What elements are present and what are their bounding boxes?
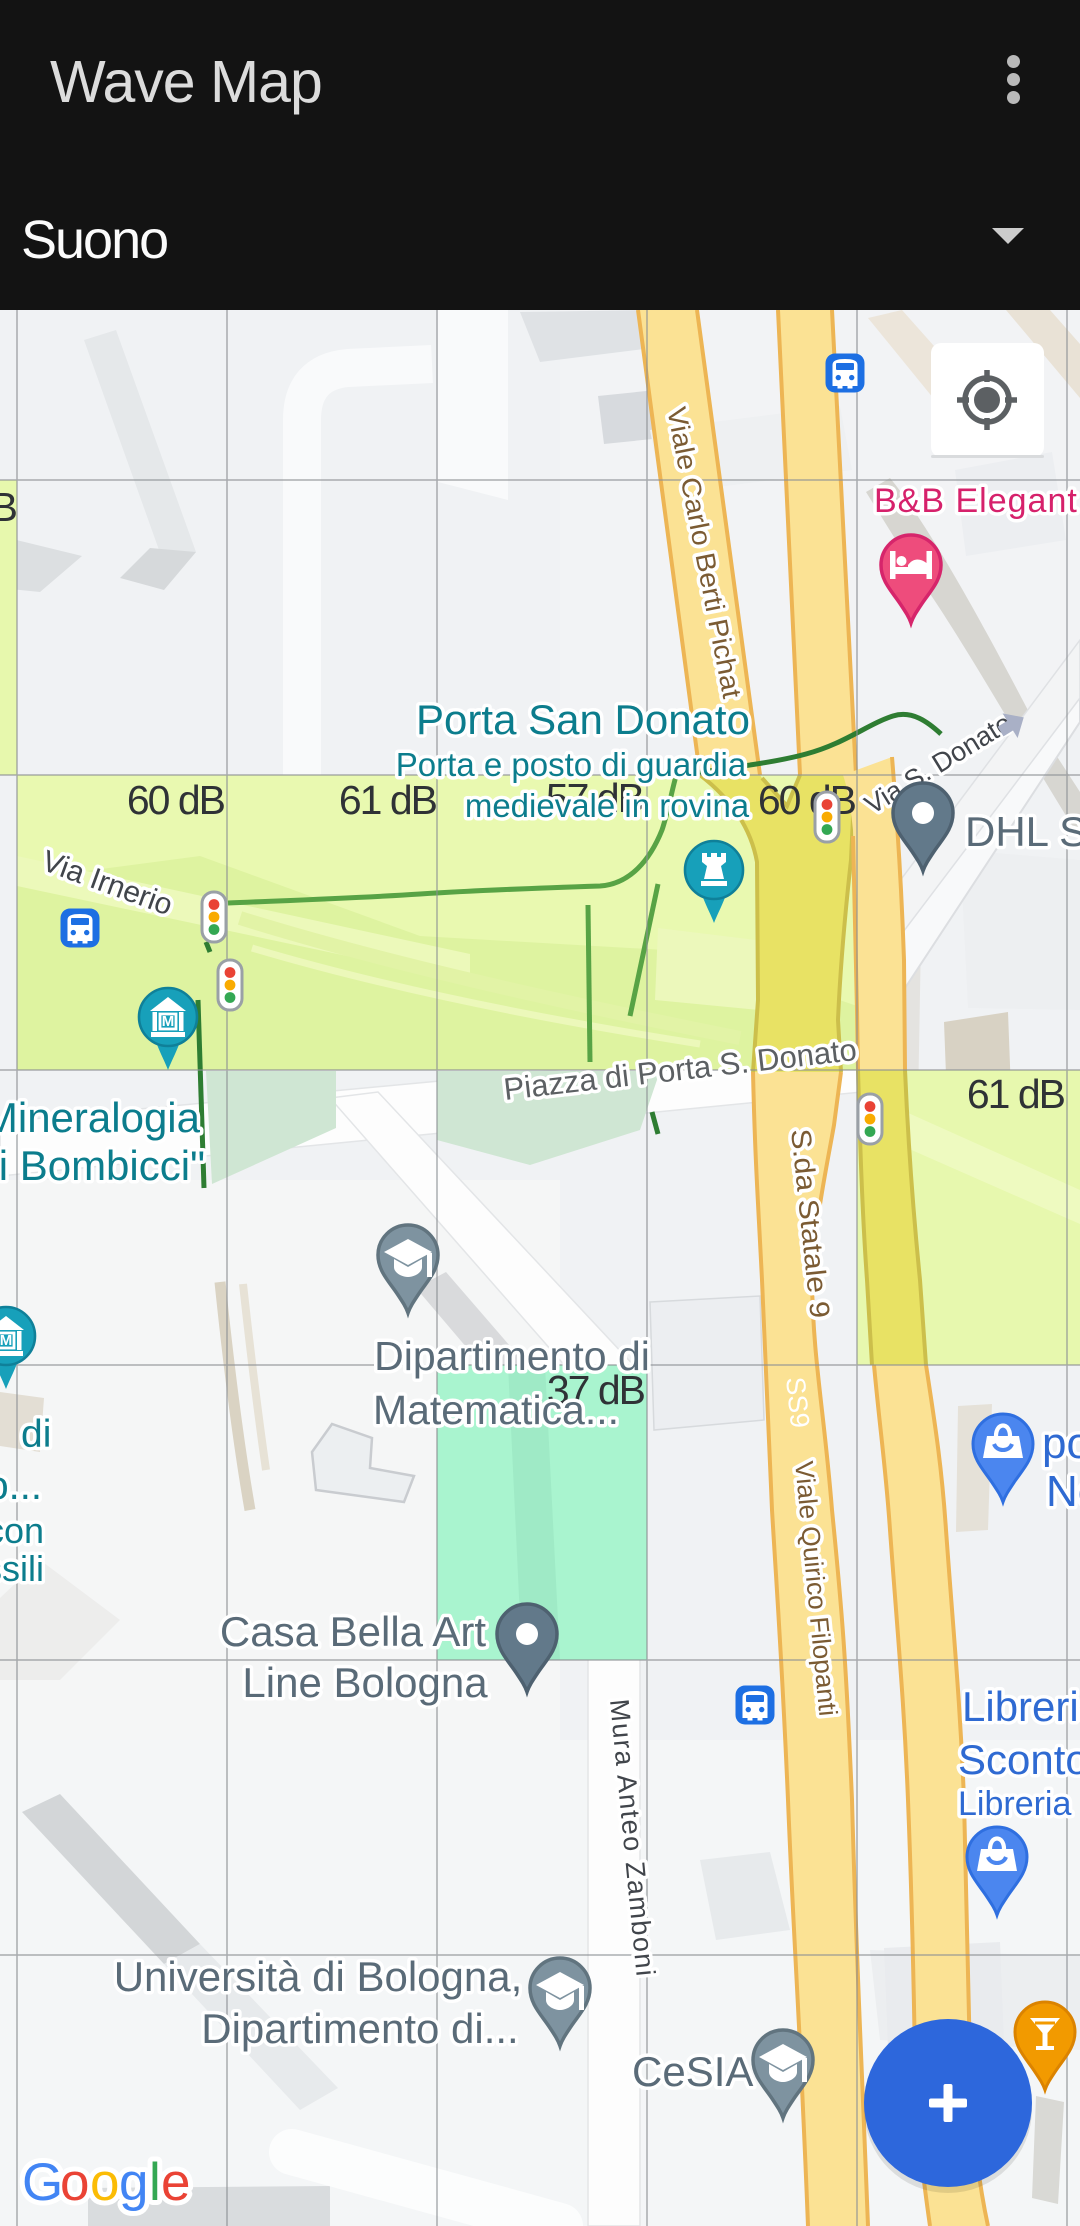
svg-text:con: con [0, 1510, 44, 1551]
svg-text:Libreria: Libreria [962, 1683, 1080, 1730]
svg-text:Università di Bologna,: Università di Bologna, [114, 1953, 523, 2000]
svg-text:B&B Elegant: B&B Elegant [874, 482, 1078, 520]
svg-text:di: di [21, 1413, 51, 1456]
svg-text:60 dB: 60 dB [127, 777, 225, 823]
svg-text:Porta San Donato: Porta San Donato [416, 696, 750, 743]
svg-text:Mineralogia: Mineralogia [0, 1094, 201, 1141]
svg-text:Porta e posto di guardia: Porta e posto di guardia [396, 746, 747, 783]
svg-text:o...: o... [0, 1464, 42, 1508]
svg-text:po...: po... [1042, 1419, 1080, 1468]
svg-text:60 dB: 60 dB [758, 777, 856, 823]
svg-text:Dipartimento di: Dipartimento di [374, 1333, 650, 1379]
svg-text:SS9: SS9 [780, 1375, 815, 1429]
svg-text:CeSIA: CeSIA [632, 2048, 753, 2095]
svg-text:Casa Bella Art: Casa Bella Art [220, 1608, 486, 1655]
svg-text:M: M [0, 1332, 12, 1349]
svg-text:Matematica...: Matematica... [373, 1387, 619, 1433]
svg-text:DHL ST: DHL ST [965, 808, 1080, 855]
svg-text:Line Bologna: Line Bologna [242, 1659, 488, 1706]
svg-text:Dipartimento di...: Dipartimento di... [201, 2005, 518, 2052]
svg-text:Sconto: Sconto [958, 1736, 1080, 1783]
svg-text:61 dB: 61 dB [339, 777, 437, 823]
svg-text:i Bombicci": i Bombicci" [0, 1142, 205, 1189]
svg-text:Ne...: Ne... [1046, 1467, 1080, 1516]
svg-text:61 dB: 61 dB [967, 1071, 1065, 1117]
svg-text:medievale in rovina: medievale in rovina [465, 787, 750, 824]
svg-text:Google: Google [22, 2153, 190, 2212]
svg-text:60 dB: 60 dB [0, 484, 17, 530]
svg-text:M: M [162, 1013, 175, 1030]
svg-text:ssili: ssili [0, 1548, 44, 1589]
svg-text:Libreria: Libreria [958, 1785, 1071, 1823]
